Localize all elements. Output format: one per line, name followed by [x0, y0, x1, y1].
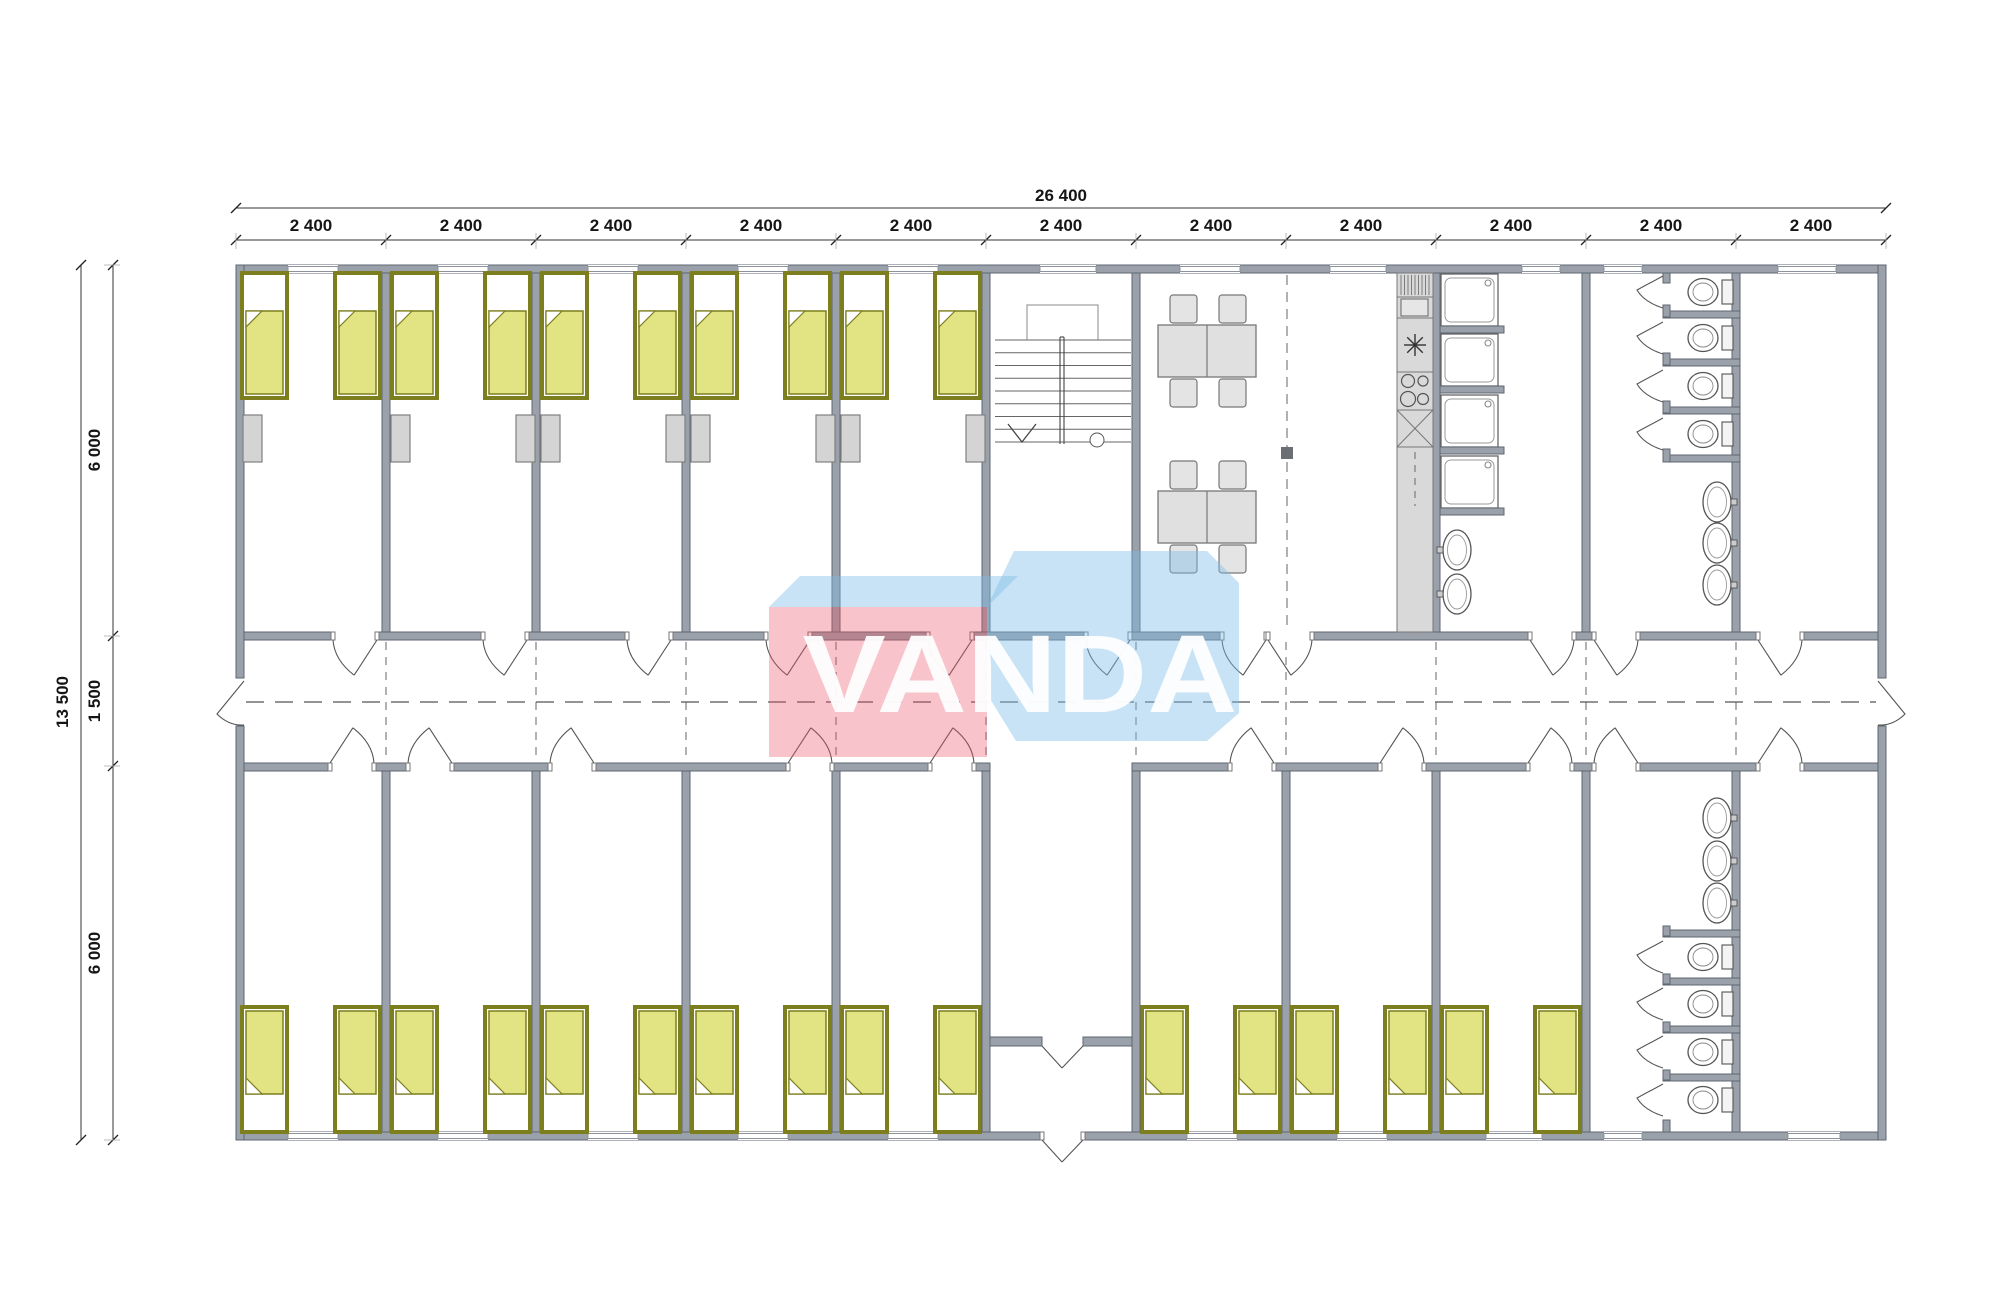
door-leaf	[1528, 728, 1551, 763]
bed-blanket	[696, 311, 733, 394]
door-jamb	[372, 763, 376, 771]
dim-module-width-label: 2 400	[890, 216, 933, 235]
washbasin-tap	[1437, 547, 1443, 553]
door-jamb	[1636, 632, 1640, 640]
wall	[1312, 632, 1530, 640]
bed-blanket	[939, 1011, 976, 1094]
chair	[1170, 295, 1197, 323]
door-jamb	[375, 632, 379, 640]
door-leaf	[571, 728, 594, 763]
door-jamb	[406, 763, 410, 771]
door-jamb	[1272, 763, 1276, 771]
wall	[1663, 273, 1670, 283]
door-leaf	[354, 640, 377, 675]
wall	[1424, 763, 1528, 771]
cubicle-door-swing	[1637, 941, 1663, 973]
door-jamb	[1570, 763, 1574, 771]
wall	[1802, 632, 1878, 640]
door-jamb	[328, 763, 332, 771]
washbasin-tap	[1731, 900, 1737, 906]
door-swing	[627, 640, 648, 675]
shower-tray	[1441, 334, 1498, 386]
bed-blanket	[246, 311, 283, 394]
wall	[1274, 763, 1380, 771]
bed-blanket	[939, 311, 976, 394]
door-jamb	[1081, 1132, 1085, 1140]
floor-plan-canvas: 2 4002 4002 4002 4002 4002 4002 4002 400…	[0, 0, 2000, 1312]
bed-blanket	[639, 1011, 676, 1094]
wall	[1083, 1037, 1132, 1046]
door-swing	[550, 728, 571, 763]
door-jamb	[625, 632, 629, 640]
dim-total-height-label: 13 500	[53, 676, 72, 728]
door-leaf	[504, 640, 527, 675]
door-swing	[1042, 1140, 1083, 1162]
door-jamb	[1528, 632, 1532, 640]
bed-blanket	[1539, 1011, 1576, 1094]
bed-blanket	[396, 311, 433, 394]
dim-total-width-label: 26 400	[1035, 186, 1087, 205]
toilet-tank	[1722, 422, 1733, 446]
door-leaf	[1268, 640, 1291, 675]
bed-blanket	[339, 1011, 376, 1094]
door-jamb	[1266, 632, 1270, 640]
door-swing	[1291, 640, 1312, 675]
bed-blanket	[246, 1011, 283, 1094]
wall	[1663, 930, 1740, 937]
door-swing	[483, 640, 504, 675]
wall	[244, 763, 330, 771]
door-jamb	[450, 763, 454, 771]
door-jamb	[1040, 1132, 1044, 1140]
bed-blanket	[396, 1011, 433, 1094]
bed-blanket	[489, 311, 526, 394]
wall	[1440, 447, 1504, 454]
wall	[1132, 763, 1230, 771]
bed-blanket	[546, 1011, 583, 1094]
door-swing	[1781, 640, 1802, 675]
door-swing	[353, 728, 374, 763]
door-leaf	[1243, 640, 1266, 675]
door-swing	[217, 681, 244, 725]
door-jamb	[764, 632, 768, 640]
stair-flight-outline	[1027, 305, 1098, 340]
nightstand	[516, 415, 535, 462]
door-jamb	[1636, 763, 1640, 771]
nightstand	[541, 415, 560, 462]
door-swing	[408, 728, 429, 763]
door-jamb	[481, 632, 485, 640]
nightstand	[391, 415, 410, 462]
floor-plan-page: 2 4002 4002 4002 4002 4002 4002 4002 400…	[0, 0, 2000, 1312]
dim-left-segment-label: 1 500	[85, 680, 104, 723]
wall	[832, 771, 840, 1132]
wall	[1663, 1120, 1670, 1132]
dim-module-width-label: 2 400	[1040, 216, 1083, 235]
door-leaf	[1380, 728, 1403, 763]
wall	[1440, 508, 1504, 515]
wall	[532, 771, 540, 1132]
door-jamb	[1526, 763, 1530, 771]
washbasin-tap	[1731, 815, 1737, 821]
door-jamb	[669, 632, 673, 640]
bed-blanket	[696, 1011, 733, 1094]
toilet-tank	[1722, 374, 1733, 398]
bed-blanket	[546, 311, 583, 394]
wall	[382, 771, 390, 1132]
door-leaf	[1594, 640, 1617, 675]
shower-tray	[1441, 395, 1498, 447]
door-jamb	[1310, 632, 1314, 640]
wall	[1663, 974, 1670, 984]
shower-tray	[1441, 456, 1498, 508]
washbasin-tap	[1731, 858, 1737, 864]
wall	[832, 763, 930, 771]
wall	[1440, 386, 1504, 393]
dim-module-width-label: 2 400	[1640, 216, 1683, 235]
door-jamb	[786, 763, 790, 771]
door-jamb	[1378, 763, 1382, 771]
bed-blanket	[339, 311, 376, 394]
door-jamb	[830, 763, 834, 771]
toilet-tank	[1722, 1088, 1733, 1112]
door-jamb	[1756, 632, 1760, 640]
wall	[1878, 265, 1886, 678]
wall	[990, 1037, 1042, 1046]
bed-blanket	[639, 311, 676, 394]
toilet-tank	[1722, 992, 1733, 1016]
door-jamb	[331, 632, 335, 640]
watermark-box-top	[769, 576, 1018, 607]
watermark-text: VANDA	[803, 613, 1238, 736]
bed-blanket	[1146, 1011, 1183, 1094]
wall	[1663, 353, 1670, 365]
dim-module-width-label: 2 400	[740, 216, 783, 235]
washbasin-tap	[1437, 591, 1443, 597]
wall	[374, 763, 408, 771]
door-swing	[1781, 728, 1802, 763]
door-jamb	[548, 763, 552, 771]
dim-module-width-label: 2 400	[1490, 216, 1533, 235]
door-leaf	[429, 728, 452, 763]
wall	[671, 632, 766, 640]
wall	[1663, 401, 1670, 413]
dim-module-width-label: 2 400	[290, 216, 333, 235]
door-swing	[1403, 728, 1424, 763]
wall	[1878, 726, 1886, 1140]
chair	[1219, 295, 1246, 323]
wall	[527, 632, 627, 640]
wall	[594, 763, 788, 771]
wall	[1663, 1026, 1740, 1033]
wall	[1638, 632, 1758, 640]
cubicle-door-swing	[1637, 1084, 1663, 1116]
cubicle-door-swing	[1637, 418, 1663, 450]
wall	[982, 771, 990, 1132]
door-jamb	[1422, 763, 1426, 771]
nightstand	[666, 415, 685, 462]
nightstand	[691, 415, 710, 462]
dim-left-segment-label: 6 000	[85, 429, 104, 472]
wall	[1132, 771, 1140, 1132]
toilet-tank	[1722, 326, 1733, 350]
door-swing	[1878, 681, 1905, 725]
stair-down-arrow	[1008, 424, 1036, 442]
wall	[452, 763, 550, 771]
wall	[1663, 978, 1740, 985]
bed-blanket	[1446, 1011, 1483, 1094]
door-jamb	[1228, 763, 1232, 771]
door-leaf	[648, 640, 671, 675]
chair	[1219, 461, 1246, 489]
stair-rail-end	[1090, 433, 1104, 447]
bed-blanket	[1296, 1011, 1333, 1094]
wall	[1440, 326, 1504, 333]
wall	[1802, 763, 1878, 771]
door-leaf	[1251, 728, 1274, 763]
cubicle-door-swing	[1637, 1036, 1663, 1068]
nightstand	[243, 415, 262, 462]
wall	[1663, 455, 1740, 462]
wall	[1663, 1074, 1740, 1081]
door-swing	[1617, 640, 1638, 675]
washbasin-tap	[1731, 582, 1737, 588]
axis-marker	[1281, 447, 1293, 459]
bed-blanket	[846, 311, 883, 394]
door-leaf	[1615, 728, 1638, 763]
wall	[1663, 311, 1740, 318]
nightstand	[841, 415, 860, 462]
toilet-tank	[1722, 280, 1733, 304]
nightstand	[966, 415, 985, 462]
chair	[1170, 461, 1197, 489]
nightstand	[816, 415, 835, 462]
chair	[1170, 379, 1197, 407]
dim-module-width-label: 2 400	[1190, 216, 1233, 235]
wall	[1638, 763, 1758, 771]
wall	[1663, 926, 1670, 936]
kitchen-module	[1401, 299, 1428, 316]
wall	[1572, 763, 1594, 771]
wall	[244, 632, 333, 640]
door-leaf	[1758, 728, 1781, 763]
dim-module-width-label: 2 400	[440, 216, 483, 235]
washbasin-tap	[1731, 499, 1737, 505]
bed-blanket	[1239, 1011, 1276, 1094]
toilet-tank	[1722, 1040, 1733, 1064]
chair	[1219, 379, 1246, 407]
door-jamb	[1756, 763, 1760, 771]
wall	[1582, 771, 1590, 1132]
wall	[682, 771, 690, 1132]
door-swing	[333, 640, 354, 675]
door-jamb	[1800, 763, 1804, 771]
bed-blanket	[789, 1011, 826, 1094]
cubicle-door-swing	[1637, 988, 1663, 1020]
toilet-tank	[1722, 945, 1733, 969]
wall	[382, 273, 390, 632]
door-leaf	[330, 728, 353, 763]
bed-blanket	[1389, 1011, 1426, 1094]
wall	[1663, 1070, 1670, 1080]
door-swing	[1551, 728, 1572, 763]
wall	[1663, 305, 1670, 317]
cubicle-door-swing	[1637, 276, 1663, 308]
shower-tray	[1441, 274, 1498, 326]
door-jamb	[592, 763, 596, 771]
watermark-logo: VANDA	[769, 551, 1239, 757]
cubicle-door-swing	[1637, 370, 1663, 402]
wall	[1282, 771, 1290, 1132]
wall	[1574, 632, 1594, 640]
dim-module-width-label: 2 400	[1340, 216, 1383, 235]
door-swing	[1594, 728, 1615, 763]
dim-module-width-label: 2 400	[590, 216, 633, 235]
door-jamb	[1572, 632, 1576, 640]
wall	[377, 632, 483, 640]
bed-blanket	[489, 1011, 526, 1094]
wall	[1663, 1022, 1670, 1032]
door-swing	[1042, 1046, 1083, 1068]
door-jamb	[1592, 763, 1596, 771]
door-jamb	[1592, 632, 1596, 640]
cubicle-door-swing	[1637, 322, 1663, 354]
door-jamb	[972, 763, 976, 771]
door-jamb	[1800, 632, 1804, 640]
wall	[1582, 273, 1590, 632]
door-leaf	[1758, 640, 1781, 675]
door-jamb	[525, 632, 529, 640]
dim-left-segment-label: 6 000	[85, 932, 104, 975]
wall	[1432, 771, 1440, 1132]
door-swing	[1553, 640, 1574, 675]
wall	[1663, 359, 1740, 366]
door-leaf	[1530, 640, 1553, 675]
bed-blanket	[846, 1011, 883, 1094]
door-jamb	[928, 763, 932, 771]
wall	[1663, 407, 1740, 414]
bed-blanket	[789, 311, 826, 394]
washbasin-tap	[1731, 540, 1737, 546]
wall	[1663, 449, 1670, 462]
dim-module-width-label: 2 400	[1790, 216, 1833, 235]
